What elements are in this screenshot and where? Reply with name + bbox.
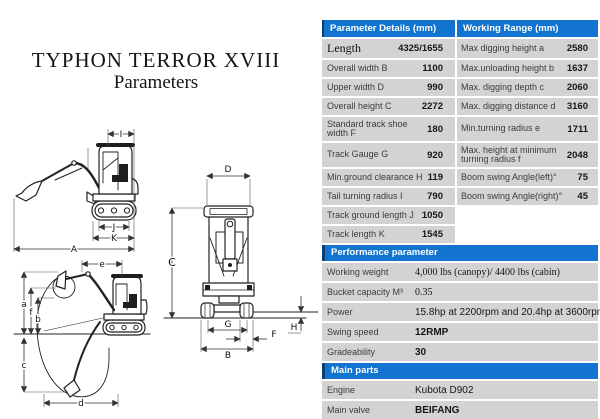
spec-sheet: I J K A: [0, 0, 600, 419]
param-value: 1100: [422, 63, 443, 74]
working-range-header: Working Range (mm): [457, 20, 598, 37]
dim-label-g: G: [225, 320, 232, 330]
range-label: Max.unloading height b: [461, 64, 554, 73]
table-row: Min.ground clearance H119 Boom swing Ang…: [322, 169, 598, 186]
param-label: Tail turning radius I: [327, 192, 403, 201]
dim-label-k: K: [111, 234, 118, 244]
dim-label-d: d: [78, 399, 84, 409]
model-name: TYPHON TERROR XVIII: [6, 48, 306, 72]
param-value: 2272: [422, 101, 443, 112]
table-row: Working weight 4,000 lbs (canopy)/ 4400 …: [322, 263, 598, 281]
table-row: Overall width B1100 Max.unloading height…: [322, 60, 598, 77]
table-row: Standard track shoe width F180 Min.turni…: [322, 117, 598, 141]
dim-label-f: f: [29, 308, 33, 318]
param-value: 180: [427, 124, 443, 135]
range-value: 45: [577, 191, 588, 202]
table-row: Length4325/1655 Max digging height a2580: [322, 39, 598, 58]
range-value: 2048: [567, 150, 588, 161]
dim-label-a-upper: A: [71, 245, 78, 255]
dim-label-j: J: [112, 223, 116, 233]
param-value: 990: [427, 82, 443, 93]
perf-label: Working weight: [322, 267, 415, 277]
perf-value: 15.8hp at 2200rpm and 20.4hp at 3600rpm: [415, 307, 600, 318]
range-value: 2060: [567, 82, 588, 93]
dim-label-h: H: [291, 323, 298, 333]
table-row: Track ground length J1050: [322, 207, 598, 224]
table-row: Bucket capacity M³ 0.35: [322, 283, 598, 301]
perf-value: 30: [415, 347, 598, 358]
range-label: Max. digging distance d: [461, 102, 556, 111]
perf-value: 4,000 lbs (canopy)/ 4400 lbs (cabin): [415, 267, 598, 278]
param-value: 1545: [422, 229, 443, 240]
spec-tables: Parameter Details (mm) Working Range (mm…: [322, 20, 598, 419]
part-label: Main valve: [322, 405, 415, 415]
range-label: Max. height at minimum turning radius f: [461, 146, 561, 165]
side-view-drawing: I J K A: [14, 129, 138, 255]
dim-label-f-upper: F: [271, 330, 276, 340]
table-row: Upper width D990 Max. digging depth c206…: [322, 79, 598, 96]
table-row: Track Gauge G920 Max. height at minimum …: [322, 143, 598, 167]
range-label: Max. digging depth c: [461, 83, 544, 92]
dim-label-a: a: [21, 300, 27, 310]
page-title: TYPHON TERROR XVIII Parameters: [6, 48, 306, 94]
range-value: 1637: [567, 63, 588, 74]
param-value: 119: [428, 172, 443, 183]
range-label: Boom swing Angle(right)°: [461, 192, 562, 201]
dimensions-table-header: Parameter Details (mm) Working Range (mm…: [322, 20, 598, 37]
dim-label-b: b: [35, 315, 41, 325]
perf-label: Power: [322, 307, 415, 317]
title-subtitle: Parameters: [6, 72, 306, 94]
range-label: Boom swing Angle(left)°: [461, 173, 557, 182]
table-row: Main valve BEIFANG: [322, 401, 598, 419]
param-label: Track Gauge G: [327, 150, 388, 159]
perf-value: 0.35: [415, 287, 598, 298]
table-row: Swing speed 12RMP: [322, 323, 598, 341]
dim-label-d-upper: D: [225, 165, 232, 175]
param-label: Min.ground clearance H: [327, 173, 423, 182]
range-value: 1711: [567, 124, 588, 135]
working-range-drawing: e a f b c d: [14, 260, 150, 409]
part-value: Kubota D902: [415, 385, 598, 396]
param-label: Length: [327, 42, 361, 55]
range-label: Max digging height a: [461, 44, 544, 53]
main-parts-section-header: Main parts: [322, 363, 598, 379]
part-value: BEIFANG: [415, 405, 598, 416]
dim-label-i-upper: I: [120, 130, 123, 140]
param-label: Standard track shoe width F: [327, 120, 411, 139]
performance-section-header: Performance parameter: [322, 245, 598, 261]
dim-label-e: e: [99, 260, 105, 270]
perf-label: Bucket capacity M³: [322, 287, 415, 297]
dim-label-c-upper: C: [168, 256, 176, 269]
drawings-panel: I J K A: [0, 0, 322, 419]
param-label: Overall height C: [327, 102, 392, 111]
parameter-details-header: Parameter Details (mm): [322, 20, 455, 37]
table-row: Gradeability 30: [322, 343, 598, 361]
range-value: 2580: [567, 43, 588, 54]
table-row: Engine Kubota D902: [322, 381, 598, 399]
range-label: Min.turning radius e: [461, 124, 540, 133]
param-value: 1050: [422, 210, 443, 221]
param-label: Upper width D: [327, 83, 384, 92]
param-label: Overall width B: [327, 64, 388, 73]
perf-value: 12RMP: [415, 327, 598, 338]
part-label: Engine: [322, 385, 415, 395]
table-row: Tail turning radius I790 Boom swing Angl…: [322, 188, 598, 205]
range-value: 75: [577, 172, 588, 183]
param-value: 920: [427, 150, 443, 161]
param-label: Track ground length J: [327, 211, 414, 220]
dim-label-b-upper: B: [225, 351, 231, 361]
perf-label: Gradeability: [322, 347, 415, 357]
range-value: 3160: [567, 101, 588, 112]
table-row: Track length K1545: [322, 226, 598, 243]
param-value: 790: [427, 191, 443, 202]
table-row: Power 15.8hp at 2200rpm and 20.4hp at 36…: [322, 303, 598, 321]
front-view-drawing: D C H G F: [164, 165, 318, 361]
dim-label-c: c: [22, 361, 27, 371]
param-value: 4325/1655: [398, 43, 443, 54]
param-label: Track length K: [327, 230, 385, 239]
perf-label: Swing speed: [322, 327, 415, 337]
table-row: Overall height C2272 Max. digging distan…: [322, 98, 598, 115]
